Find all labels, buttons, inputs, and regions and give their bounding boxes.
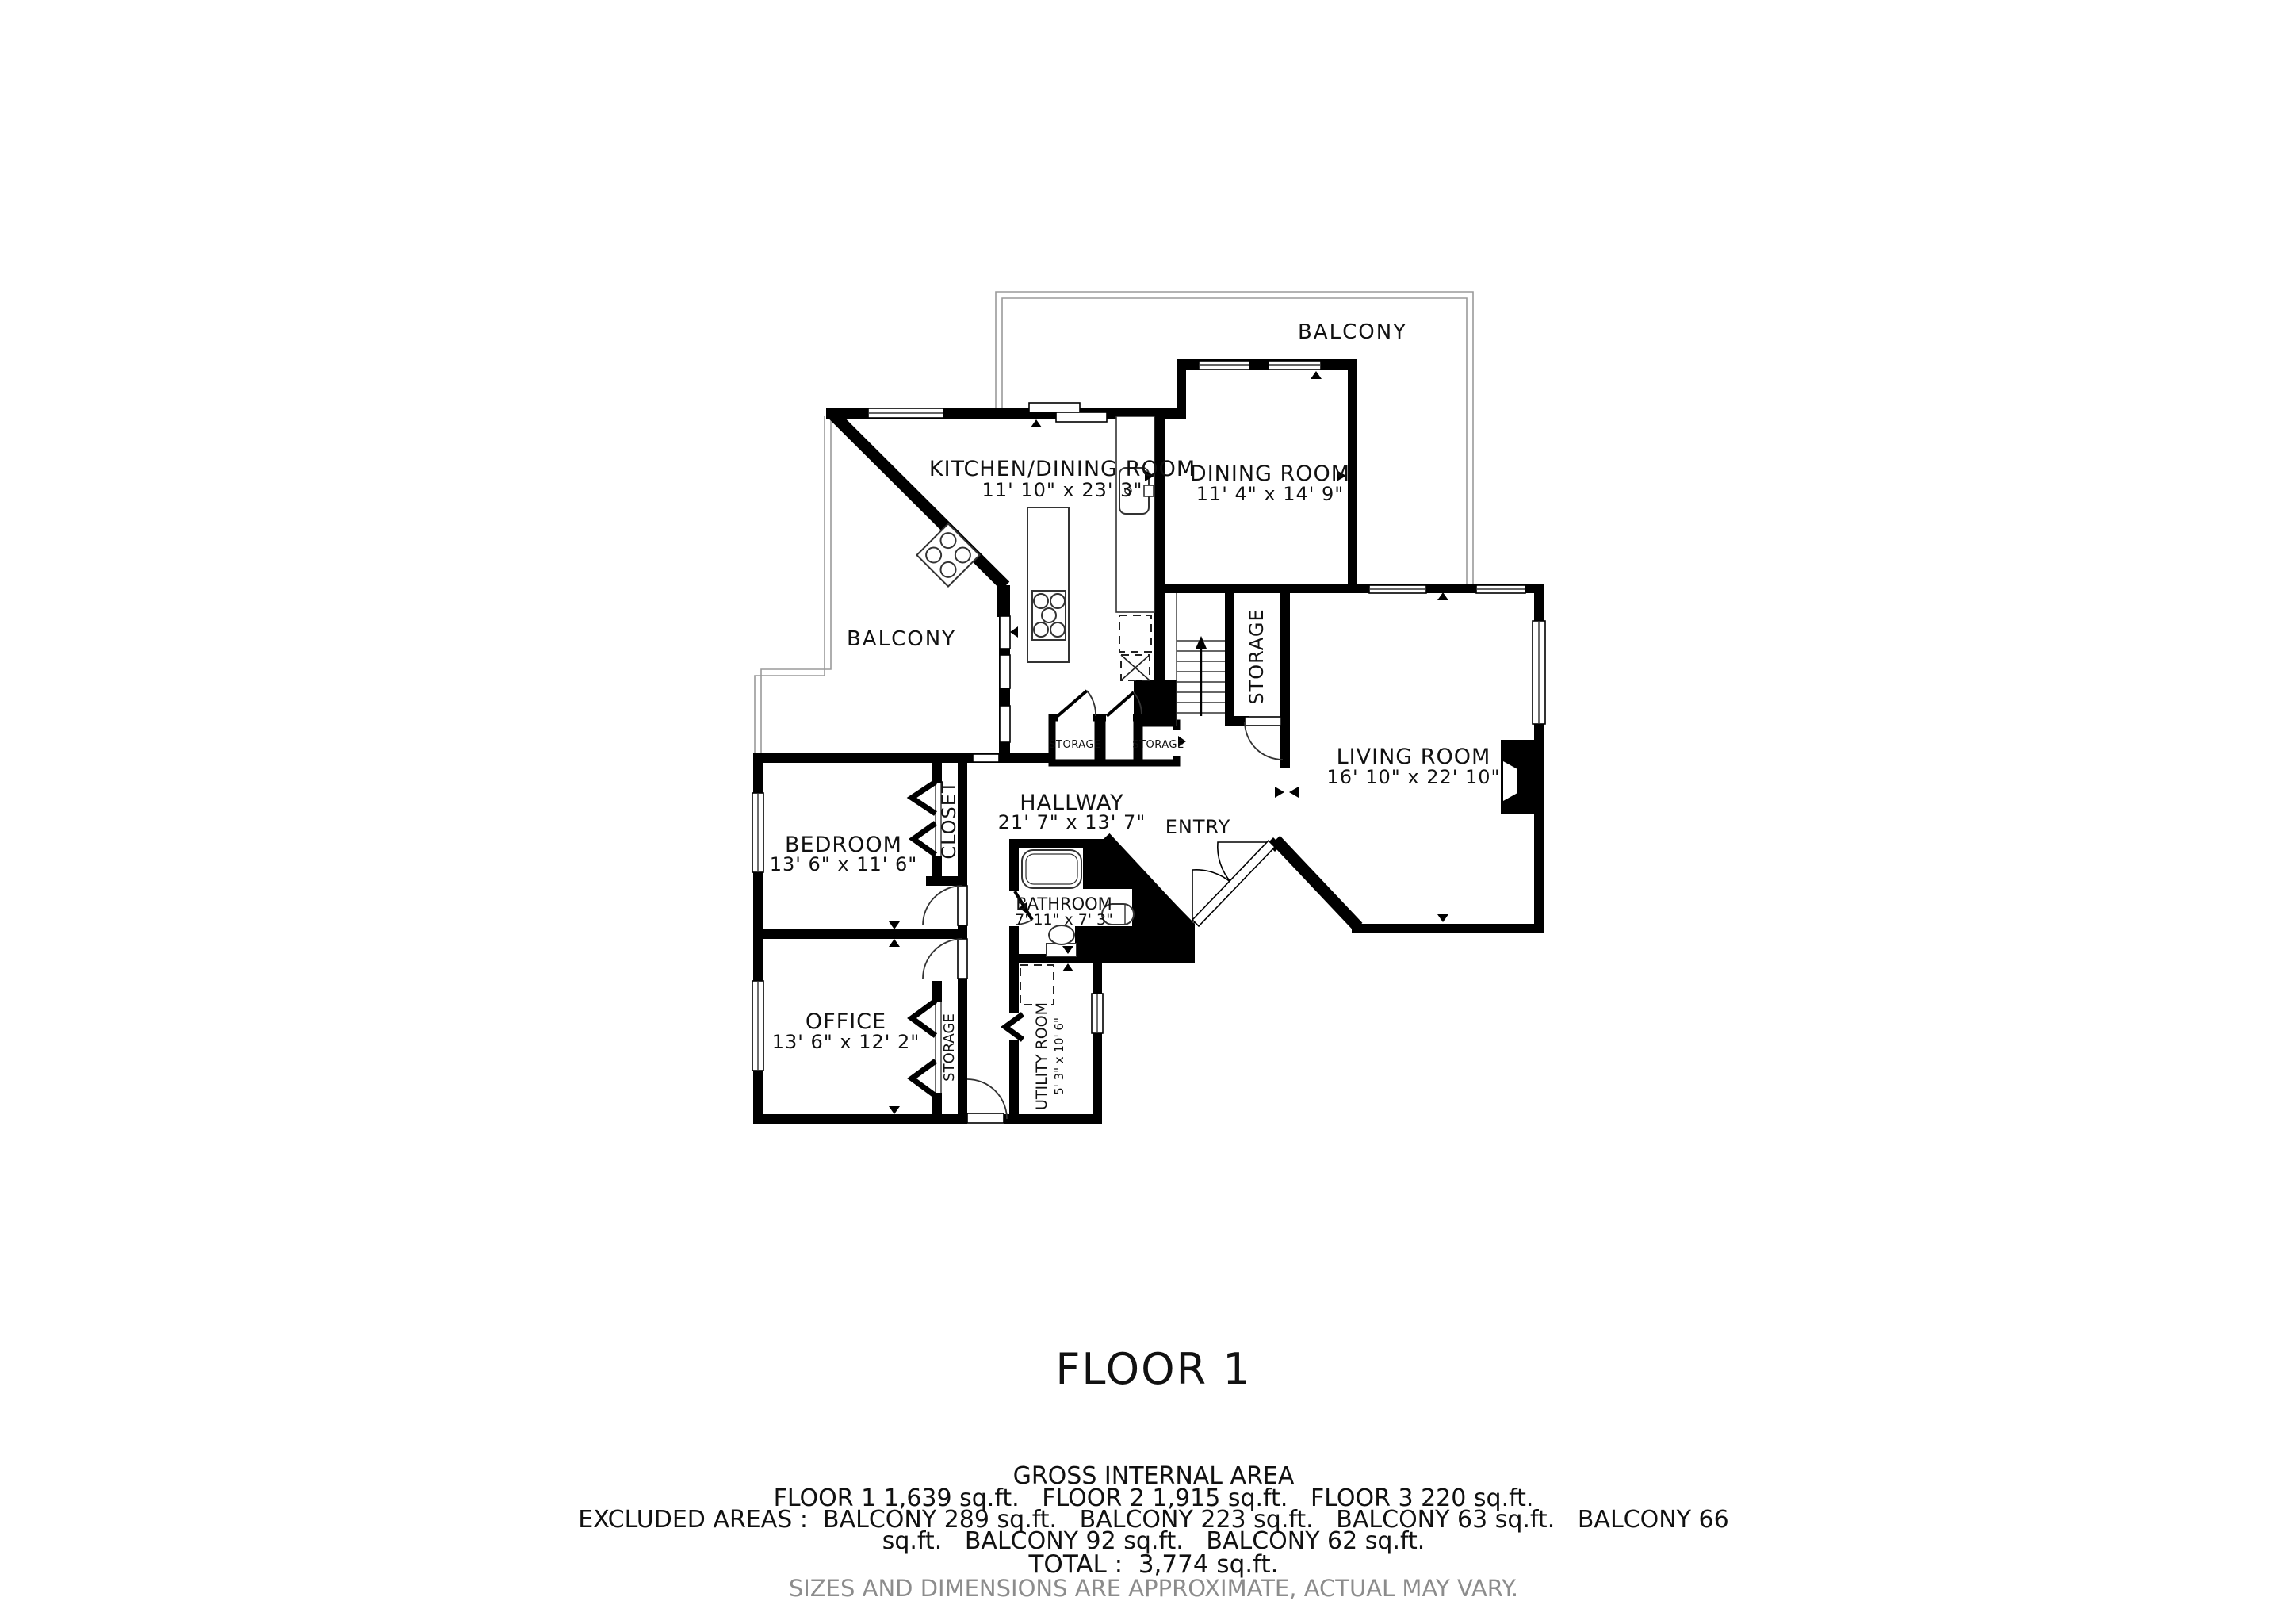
toilet-icon	[1047, 925, 1077, 956]
stairs-up-arrow	[1196, 636, 1207, 649]
office-dims: 13' 6" x 12' 2"	[772, 1031, 920, 1053]
kitchen-dining-label: KITCHEN/DINING ROOM	[929, 457, 1196, 481]
kitchen-counter-sink	[1116, 416, 1154, 680]
kitchen-dining-dims: 11' 10" x 23' 3"	[982, 479, 1143, 501]
utility-door	[1005, 1014, 1023, 1040]
fireplace-icon	[1501, 740, 1534, 814]
window-utility-east	[1092, 994, 1103, 1033]
title-block: FLOOR 1 GROSS INTERNAL AREA FLOOR 1 1,63…	[578, 1344, 1728, 1602]
window-living-east	[1533, 621, 1545, 724]
entry-label: ENTRY	[1165, 816, 1231, 838]
window-kitchen-top	[868, 408, 943, 418]
office-storage-label: STORAGE	[941, 1013, 958, 1082]
storage-closet-c-label: STORAGE	[1132, 739, 1184, 751]
storage-closet-a-label: STORAGE	[1049, 739, 1100, 751]
washer-icon	[1020, 965, 1054, 1005]
floorplan-page: BALCONY BALCONY KITCHEN/DINING ROOM 11' …	[0, 0, 2296, 1624]
bathroom-dims: 7' 11" x 7' 3"	[1015, 911, 1113, 929]
window-bedroom-west	[752, 793, 763, 872]
living-dims: 16' 10" x 22' 10"	[1326, 766, 1500, 788]
floor-title: FLOOR 1	[1055, 1344, 1251, 1394]
bedroom-dims: 13' 6" x 11' 6"	[770, 853, 918, 875]
bathtub-icon	[1022, 850, 1081, 888]
window-office-west	[752, 981, 763, 1071]
bedroom-door	[923, 886, 967, 925]
office-door	[923, 939, 967, 979]
storage-room-label: STORAGE	[1246, 608, 1268, 704]
floorplan-drawing: BALCONY BALCONY KITCHEN/DINING ROOM 11' …	[0, 0, 2296, 1624]
sliding-door-kitchen	[1029, 403, 1107, 422]
entry-double-door	[1192, 841, 1275, 926]
balcony-top-label: BALCONY	[1298, 320, 1407, 344]
stove-icon	[916, 523, 979, 586]
storage-room-door	[1245, 717, 1283, 760]
windows-kitchen-west	[1000, 616, 1010, 742]
staircase	[1177, 593, 1225, 726]
kitchen-island	[1027, 507, 1069, 662]
window-hall-north	[973, 754, 999, 762]
disclaimer-note: SIZES AND DIMENSIONS ARE APPROXIMATE, AC…	[789, 1575, 1518, 1602]
closet-label: CLOSET	[938, 780, 960, 859]
utility-label: UTILITY ROOM	[1033, 1002, 1050, 1110]
hallway-dims: 21' 7" x 13' 7"	[998, 811, 1146, 833]
utility-dims: 5' 3" x 10' 6"	[1052, 1017, 1066, 1095]
balcony-outlines	[755, 292, 1473, 755]
south-door	[967, 1079, 1007, 1123]
dining-dims: 11' 4" x 14' 9"	[1196, 483, 1345, 505]
balcony-west-label: BALCONY	[847, 627, 956, 651]
